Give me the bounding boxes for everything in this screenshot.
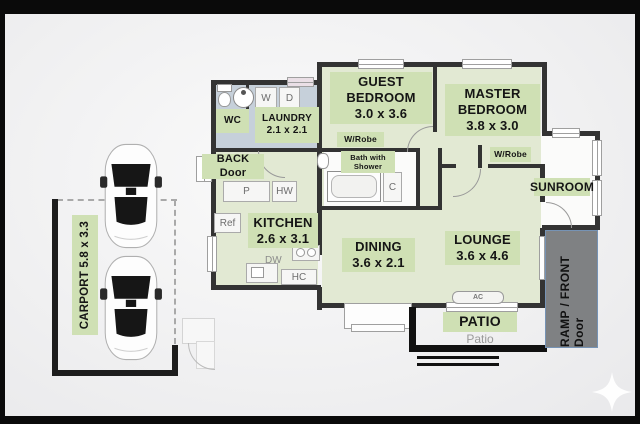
wall-master-bottom	[488, 164, 545, 168]
sparkle-icon	[592, 372, 632, 412]
patio-text: PATIO	[459, 313, 501, 330]
window	[592, 140, 602, 176]
bay-window-sill	[351, 324, 405, 332]
room-label-lounge: LOUNGE 3.6 x 4.6	[445, 231, 520, 265]
pantry-box: P	[223, 181, 270, 202]
front-steps	[417, 356, 499, 359]
wall	[542, 62, 547, 136]
back-door-text: BACK Door	[202, 153, 264, 180]
window	[358, 59, 404, 69]
washer-label: W	[261, 93, 270, 104]
burner-icon	[307, 248, 316, 257]
room-label-guest-robe: W/Robe	[337, 132, 384, 147]
hot-cupboard-label: HC	[292, 272, 306, 283]
ramp-label: RAMP / FRONT Door	[558, 231, 586, 347]
washer-box: W	[255, 87, 277, 109]
bath-line2: Shower	[354, 162, 382, 171]
room-label-wc: WC	[216, 109, 249, 133]
carport-wall	[52, 199, 58, 376]
hot-cupboard-box: HC	[281, 269, 317, 285]
master-robe-text: W/Robe	[494, 149, 527, 159]
burner-icon	[296, 248, 305, 257]
ac-unit-icon: AC	[452, 291, 504, 304]
pantry-label: P	[243, 186, 250, 197]
guest-line2: BEDROOM	[346, 90, 415, 106]
kitchen-dims: 2.6 x 3.1	[257, 231, 309, 247]
wall-hall-right	[438, 148, 442, 210]
cupboard-label: C	[389, 182, 396, 193]
dryer-box: D	[279, 87, 300, 109]
room-label-laundry: LAUNDRY 2.1 x 2.1	[255, 107, 319, 143]
wall-robe	[478, 145, 482, 168]
room-label-master-bedroom: MASTER BEDROOM 3.8 x 3.0	[445, 84, 540, 136]
room-label-carport: CARPORT 5.8 x 3.3	[72, 215, 98, 335]
laundry-name: LAUNDRY	[262, 113, 312, 125]
room-label-bath: Bath with Shower	[341, 151, 395, 173]
toilet-icon	[317, 153, 329, 169]
cupboard-box: C	[383, 172, 402, 202]
master-line2: BEDROOM	[458, 102, 527, 118]
room-label-back-door: BACK Door	[202, 154, 264, 179]
carport-boundary-dashed	[174, 200, 176, 344]
car-icon	[98, 141, 164, 251]
bathtub-inner-icon	[331, 175, 377, 198]
carport-wall	[52, 370, 178, 376]
wall-master-bottom	[442, 164, 456, 168]
ac-label: AC	[473, 294, 483, 301]
room-label-guest-bedroom: GUEST BEDROOM 3.0 x 3.6	[330, 72, 432, 124]
wall	[211, 285, 321, 290]
wall-bath-bottom	[322, 206, 442, 210]
ramp-front-door: RAMP / FRONT Door	[545, 230, 598, 348]
laundry-dims: 2.1 x 2.1	[267, 125, 308, 137]
patio-sublabel: Patio	[443, 332, 517, 346]
carport-label-text: CARPORT 5.8 x 3.3	[78, 221, 92, 329]
guest-line1: GUEST	[358, 74, 404, 90]
fridge-label: Ref	[220, 218, 236, 229]
guest-dims: 3.0 x 3.6	[355, 106, 407, 122]
laundry-trough-tap-icon	[241, 90, 246, 95]
window	[552, 128, 580, 138]
lounge-dims: 3.6 x 4.6	[456, 248, 508, 264]
dining-name: DINING	[355, 239, 402, 255]
room-label-patio: PATIO	[443, 312, 517, 332]
room-label-sunroom: SUNROOM	[534, 178, 590, 196]
window	[287, 77, 314, 87]
window	[207, 236, 217, 272]
sink-bowl-icon	[251, 267, 264, 278]
dryer-label: D	[286, 93, 293, 104]
master-dims: 3.8 x 3.0	[466, 118, 518, 134]
master-line1: MASTER	[464, 86, 520, 102]
room-label-master-robe: W/Robe	[490, 147, 531, 162]
toilet-icon	[217, 84, 232, 92]
carport-wall	[172, 345, 178, 376]
window	[462, 59, 512, 69]
patio-border	[409, 345, 547, 352]
dining-dims: 3.6 x 2.1	[352, 255, 404, 271]
wall	[317, 62, 547, 67]
room-label-dining: DINING 3.6 x 2.1	[342, 238, 415, 272]
car-icon	[98, 253, 164, 363]
front-steps	[417, 363, 499, 366]
wc-label-text: WC	[224, 115, 241, 127]
floorplan-canvas: W D P HW Ref DW HC C AC RAMP / FRONT Doo…	[0, 0, 640, 424]
bath-line1: Bath with	[350, 153, 386, 162]
hot-water-label: HW	[276, 186, 293, 197]
fridge-box: Ref	[214, 213, 241, 233]
sunroom-text: SUNROOM	[530, 180, 594, 195]
kitchen-name: KITCHEN	[253, 215, 312, 231]
lounge-name: LOUNGE	[454, 232, 511, 248]
room-label-kitchen: KITCHEN 2.6 x 3.1	[248, 213, 318, 248]
hot-water-box: HW	[272, 181, 297, 202]
guest-robe-text: W/Robe	[344, 134, 377, 144]
wall-bedroom-divider	[433, 62, 437, 132]
toilet-icon	[218, 92, 231, 107]
wall-bath-right	[416, 148, 420, 210]
